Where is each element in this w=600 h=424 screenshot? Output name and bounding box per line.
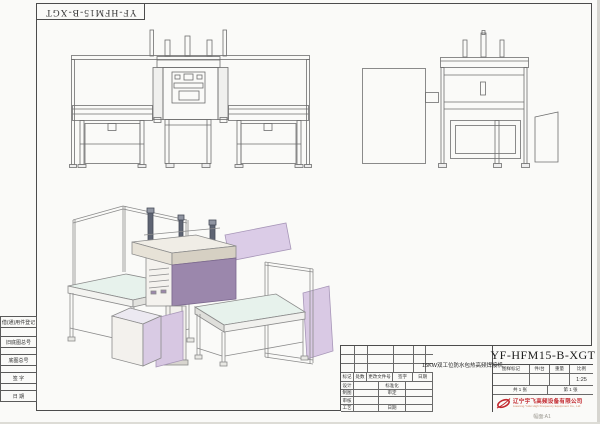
role-process: 工艺 xyxy=(341,405,354,412)
header-mark: 图样标记 xyxy=(493,365,530,374)
mark-value xyxy=(493,374,530,386)
sheets-row: 共 1 张 第 1 张 xyxy=(493,386,593,395)
sig-blank xyxy=(379,397,406,405)
sheet-total: 共 1 张 xyxy=(493,386,548,395)
sig-blank xyxy=(406,382,433,390)
sig-blank xyxy=(406,390,433,397)
margin-label-date: 日 期 xyxy=(0,390,37,402)
side-lower-shelf xyxy=(439,121,530,168)
per-unit-value xyxy=(530,374,550,386)
revision-header-row: 标记 处数 更改文件号 签字 日期 xyxy=(341,373,433,382)
role-approve: 审定 xyxy=(379,390,406,397)
signature-rows: 设计 标准化 制图 审定 审核 工艺 日期 xyxy=(341,382,433,412)
sheet-number: 第 1 张 xyxy=(548,386,593,395)
sig-blank xyxy=(354,382,379,390)
press-body-mauve xyxy=(172,258,236,306)
paper-size-note: 幅面:A1 xyxy=(512,413,572,420)
sig-blank xyxy=(406,397,433,405)
isometric-view-drawing xyxy=(60,190,340,368)
role-review: 审核 xyxy=(341,397,354,405)
corner-part-number-box: YF-HFM15-B-XGT xyxy=(37,4,145,20)
side-panel-trapezoid xyxy=(535,112,558,162)
rev-col-file: 更改文件号 xyxy=(367,373,393,382)
rev-col-date: 日期 xyxy=(413,373,433,382)
drawing-title: 15KW双工位防水包热高频焊接机 xyxy=(433,346,493,412)
company-row: 辽宁宇飞高频设备有限公司 Liaoning Yufei High Frequen… xyxy=(493,395,593,412)
tb-value-row: 1:25 xyxy=(493,374,593,386)
sig-blank xyxy=(406,405,433,412)
sig-blank xyxy=(354,390,379,397)
base-pedestal xyxy=(154,118,227,168)
top-posts xyxy=(150,30,227,56)
rev-col-mark: 标记 xyxy=(341,373,354,382)
side-view-drawing xyxy=(350,30,565,172)
sig-blank xyxy=(354,405,379,412)
left-work-table xyxy=(73,106,153,168)
model-number: YF-HFM15-B-XGT xyxy=(493,346,593,365)
revision-empty-grid xyxy=(341,346,433,373)
header-weight: 重量 xyxy=(550,365,570,374)
header-scale: 比例 xyxy=(570,365,593,374)
role-design: 设计 xyxy=(341,382,354,390)
table-profile xyxy=(363,69,426,164)
right-work-table xyxy=(229,106,309,168)
right-table-3d xyxy=(195,294,308,366)
corner-part-number: YF-HFM15-B-XGT xyxy=(45,7,137,17)
sig-blank xyxy=(354,397,379,405)
role-standardize: 标准化 xyxy=(379,382,406,390)
scale-value: 1:25 xyxy=(570,374,593,386)
connector-bar xyxy=(426,93,439,103)
drawing-sheet: YF-HFM15-B-XGT 借(通)用件登记 旧底图总号 底图总号 签 字 日… xyxy=(0,0,600,424)
tb-header-row: 图样标记 件/台 重量 比例 xyxy=(493,365,593,374)
control-panel xyxy=(172,72,205,103)
right-lavender-panel xyxy=(303,286,333,359)
company-logo-icon xyxy=(496,397,511,410)
title-block: 标记 处数 更改文件号 签字 日期 设计 标准化 制图 审定 审核 xyxy=(340,345,592,411)
rev-col-count: 处数 xyxy=(354,373,367,382)
weight-value xyxy=(550,374,570,386)
front-box-3d xyxy=(112,308,161,366)
header-per-unit: 件/台 xyxy=(530,365,550,374)
left-margin-blocks: 借(通)用件登记 旧底图总号 底图总号 签 字 日 期 xyxy=(0,317,37,402)
role-date: 日期 xyxy=(379,405,406,412)
rev-col-sign: 签字 xyxy=(393,373,413,382)
role-draft: 制图 xyxy=(341,390,354,397)
front-view-drawing xyxy=(68,24,313,172)
company-name-en: Liaoning Yufei High Frequency Equipment … xyxy=(513,405,583,408)
